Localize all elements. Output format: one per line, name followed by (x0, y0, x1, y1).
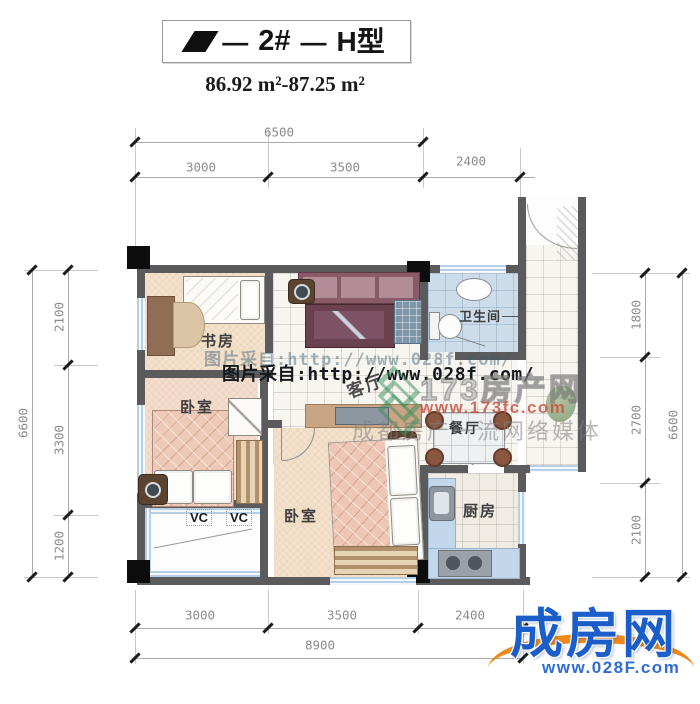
dim-line-top-segments (135, 177, 535, 178)
area-label: 86.92 m²-87.25 m² (150, 72, 420, 97)
burner (468, 556, 482, 570)
floorplan-page: — 2# — H型 86.92 m²-87.25 m² (0, 0, 700, 704)
dim-right-2: 2700 (629, 405, 644, 435)
dim-top-1: 3000 (186, 160, 216, 175)
ext-line (600, 357, 660, 358)
chengfang-logo: 成房网 www.028F.com (484, 590, 698, 700)
armchair (394, 300, 422, 344)
bedroom2-door-leaf (281, 428, 282, 460)
window-corridor-end (530, 465, 578, 472)
bedroom2-wardrobe (334, 546, 418, 575)
ext-line (24, 577, 98, 578)
ext-line (135, 128, 136, 250)
study-piano (147, 296, 175, 356)
title-dash-2: — (301, 29, 327, 55)
kitchen-stove (438, 550, 492, 577)
dim-line-bottom-segments (135, 628, 523, 629)
sofa-cushion (379, 277, 413, 298)
dim-line-left-total (32, 270, 33, 577)
ext-line (54, 365, 98, 366)
dim-line-right-total (682, 273, 683, 577)
dim-right-1: 1800 (629, 300, 644, 330)
wall-study-right (265, 273, 273, 353)
label-bathroom: 卫生间 (459, 306, 501, 325)
logo-url: www.028F.com (542, 658, 680, 678)
dim-left-2: 3300 (52, 425, 67, 455)
bathroom-leader-line (502, 316, 518, 317)
173fc-logo-mark (372, 368, 420, 428)
dining-chair (493, 448, 512, 467)
ext-line (54, 515, 98, 516)
dim-left-total: 6600 (16, 408, 31, 438)
bedroom2-blanket (329, 440, 391, 561)
dim-line-right-segments (645, 273, 646, 577)
entry-hatch (557, 206, 578, 260)
ext-line (423, 128, 424, 188)
column (127, 560, 150, 583)
label-vc-1: VC (186, 509, 212, 526)
column (127, 246, 150, 269)
bedroom2-pillow (387, 445, 418, 496)
wall-bedroom2-top-a (268, 420, 282, 428)
coffee-table-top (314, 311, 384, 339)
dim-right-total: 6600 (666, 410, 681, 440)
dim-top-2: 3500 (330, 160, 360, 175)
dim-line-left-segments (68, 270, 69, 577)
bedroom1-wardrobe (236, 440, 263, 504)
title-parallelogram-icon (182, 31, 219, 52)
kitchen-sink (429, 486, 455, 521)
dim-line-top-total (135, 142, 423, 143)
coffee-table (305, 304, 395, 348)
title-box: — 2# — H型 (162, 20, 411, 63)
title-dash-1: — (222, 29, 248, 55)
dim-bottom-total: 8900 (305, 638, 335, 653)
window-study (137, 298, 145, 350)
side-lamp-table (288, 279, 315, 304)
bathroom-sink (456, 278, 492, 301)
label-bedroom2: 卧室 (284, 505, 318, 526)
title-unit: 2# (258, 27, 290, 56)
label-kitchen: 厨房 (463, 500, 497, 521)
dim-top-3: 2400 (456, 154, 486, 169)
dim-left-3: 1200 (52, 531, 67, 561)
dim-right-3: 2100 (629, 515, 644, 545)
label-vc-2: VC (226, 509, 252, 526)
dining-chair (425, 448, 444, 467)
bedroom1-desk (228, 398, 262, 436)
logo-name: 成房网 (510, 592, 678, 668)
title-type: H型 (337, 28, 385, 56)
dim-line-bottom-total (135, 658, 523, 659)
sink-basin (434, 492, 449, 514)
window-bathroom (440, 265, 506, 273)
window-bedroom2 (330, 577, 416, 585)
burner (446, 556, 460, 570)
wall-kitchen-top-b (504, 465, 530, 473)
dim-top-total: 6500 (264, 125, 294, 140)
bedroom2-pillow (390, 497, 420, 546)
window-kitchen (518, 492, 526, 544)
dim-left-1: 2100 (52, 302, 67, 332)
label-bedroom1: 卧室 (180, 396, 214, 417)
dim-bottom-3: 2400 (455, 608, 485, 623)
bedroom1-pillow (193, 470, 232, 504)
study-bed-pillow (240, 280, 260, 320)
ext-line (24, 270, 98, 271)
dim-bottom-2: 3500 (327, 608, 357, 623)
dim-bottom-1: 3000 (185, 608, 215, 623)
wall-right-upper (518, 197, 526, 360)
ext-line (600, 483, 660, 484)
sofa-cushion (341, 277, 375, 298)
bedroom1-nightstand-lamp (138, 474, 168, 505)
